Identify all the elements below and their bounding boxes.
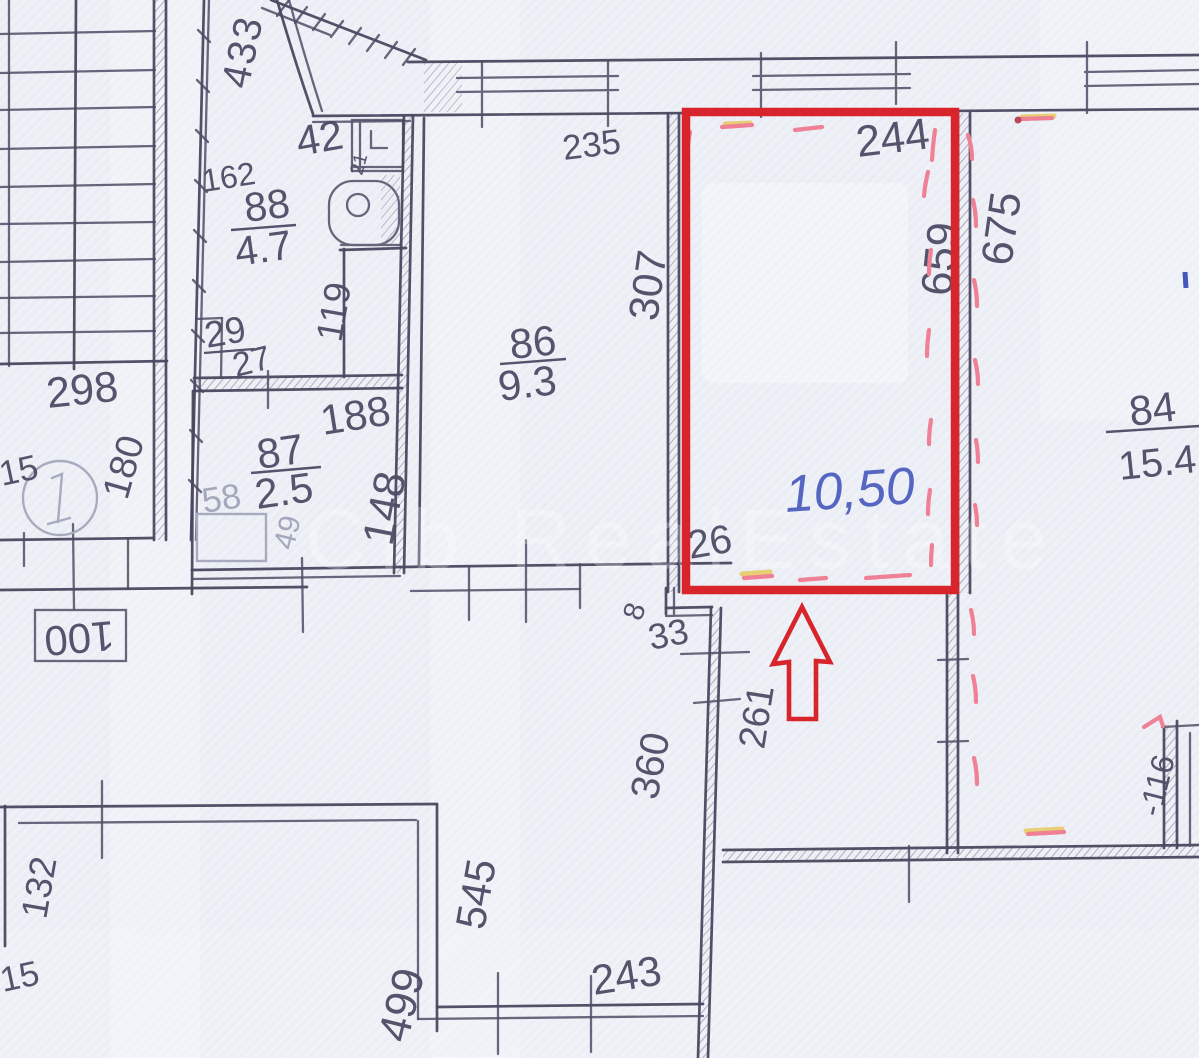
- svg-text:9.3: 9.3: [495, 356, 559, 410]
- svg-text:26: 26: [684, 517, 735, 568]
- svg-text:675: 675: [972, 189, 1031, 269]
- svg-text:33: 33: [645, 610, 692, 658]
- svg-text:10,50: 10,50: [783, 457, 917, 524]
- svg-text:42: 42: [292, 110, 346, 164]
- svg-text:4.7: 4.7: [232, 221, 295, 274]
- svg-text:298: 298: [44, 363, 120, 418]
- svg-text:2.5: 2.5: [252, 463, 316, 518]
- svg-text:58: 58: [199, 476, 244, 521]
- svg-text:15.4: 15.4: [1116, 437, 1198, 489]
- svg-text:659: 659: [912, 220, 968, 298]
- svg-text:100: 100: [42, 612, 116, 665]
- svg-text:235: 235: [560, 122, 623, 168]
- svg-text:244: 244: [853, 109, 932, 167]
- svg-text:307: 307: [619, 247, 675, 323]
